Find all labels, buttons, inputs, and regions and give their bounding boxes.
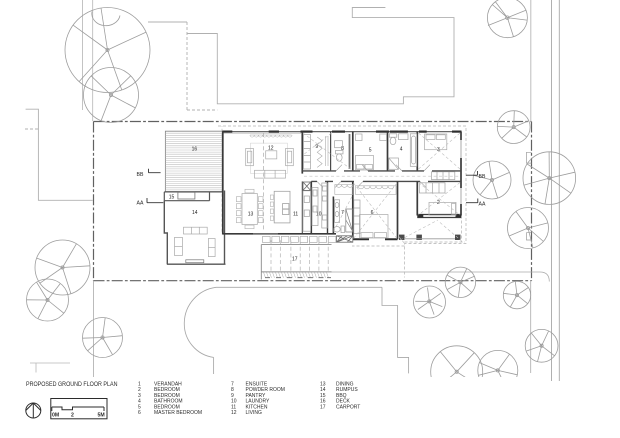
svg-text:5: 5 (369, 148, 372, 154)
svg-text:PROPOSED GROUND FLOOR PLAN: PROPOSED GROUND FLOOR PLAN (26, 382, 118, 388)
svg-text:5M: 5M (98, 412, 105, 418)
svg-text:14: 14 (192, 210, 198, 216)
svg-text:4: 4 (400, 147, 403, 153)
svg-text:6: 6 (138, 410, 141, 416)
svg-text:15: 15 (169, 194, 175, 200)
svg-text:10: 10 (316, 212, 322, 218)
svg-text:2: 2 (437, 200, 440, 206)
svg-text:MASTER BEDROOM: MASTER BEDROOM (154, 410, 202, 416)
svg-text:12: 12 (231, 410, 237, 416)
svg-text:11: 11 (293, 212, 298, 218)
svg-text:CARPORT: CARPORT (336, 404, 360, 410)
svg-text:17: 17 (292, 257, 298, 263)
svg-text:BB: BB (479, 174, 486, 180)
svg-text:17: 17 (320, 404, 326, 410)
svg-text:13: 13 (248, 212, 254, 218)
svg-text:LIVING: LIVING (246, 410, 263, 416)
svg-text:2: 2 (71, 412, 74, 418)
svg-text:0M: 0M (52, 412, 59, 418)
svg-text:AA: AA (137, 201, 144, 207)
svg-text:AA: AA (479, 202, 486, 208)
svg-text:BB: BB (137, 172, 144, 178)
svg-text:16: 16 (192, 147, 198, 153)
